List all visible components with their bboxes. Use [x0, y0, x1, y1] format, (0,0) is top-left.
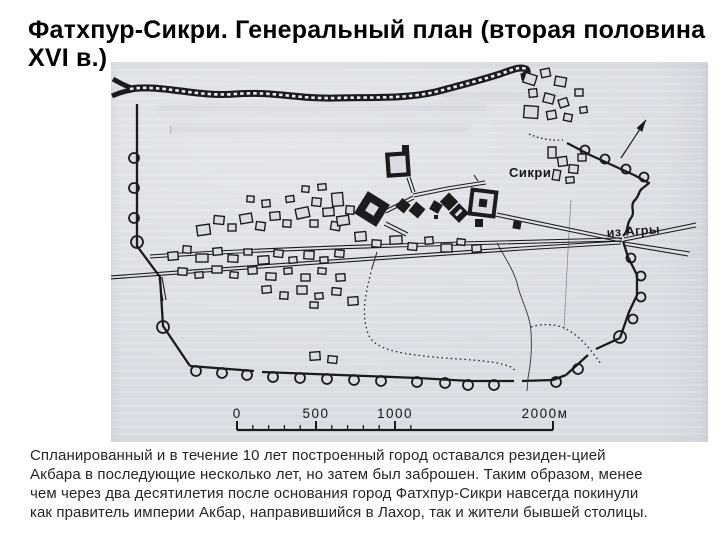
label-from-agra: из Агры	[606, 222, 660, 240]
slide: Фатхпур-Сикри. Генеральный план (вторая …	[0, 0, 720, 540]
palace-block	[434, 215, 438, 219]
caravanserai-square-icon	[470, 190, 497, 217]
caption-line-4: как правитель империи Акбар, направивший…	[30, 503, 648, 522]
mosque-square-icon	[387, 145, 409, 176]
palace-block	[409, 202, 426, 219]
caption-line-3: чем через два десятилетия после основани…	[30, 484, 648, 503]
caption-line-2: Акбара в последующие несколько лет, но з…	[30, 465, 648, 484]
scale-bar: 0 500 1000 2000м	[233, 406, 569, 430]
palace-ensemble	[354, 145, 522, 230]
road-building	[512, 220, 521, 229]
scale-label-0: 0	[233, 406, 242, 421]
site-plan-figure: Сикри из Агры 0 500 1000	[111, 62, 708, 442]
label-sikri: Сикри	[509, 165, 551, 180]
scale-label-500: 500	[302, 406, 329, 421]
scale-label-2000m: 2000м	[522, 406, 569, 421]
palace-block	[395, 198, 410, 213]
lake-band-icon	[112, 68, 527, 98]
site-plan-drawing: Сикри из Агры 0 500 1000	[111, 62, 708, 442]
page-title-line-1: Фатхпур-Сикри. Генеральный план (вторая …	[28, 16, 705, 44]
caption-line-1: Спланированный и в течение 10 лет постро…	[30, 446, 648, 465]
palace-block	[475, 219, 483, 227]
north-arrow-icon	[621, 120, 646, 159]
caption-text: Спланированный и в течение 10 лет постро…	[30, 446, 648, 522]
fort-diamond-icon	[354, 191, 390, 227]
scale-label-1000: 1000	[377, 406, 413, 421]
